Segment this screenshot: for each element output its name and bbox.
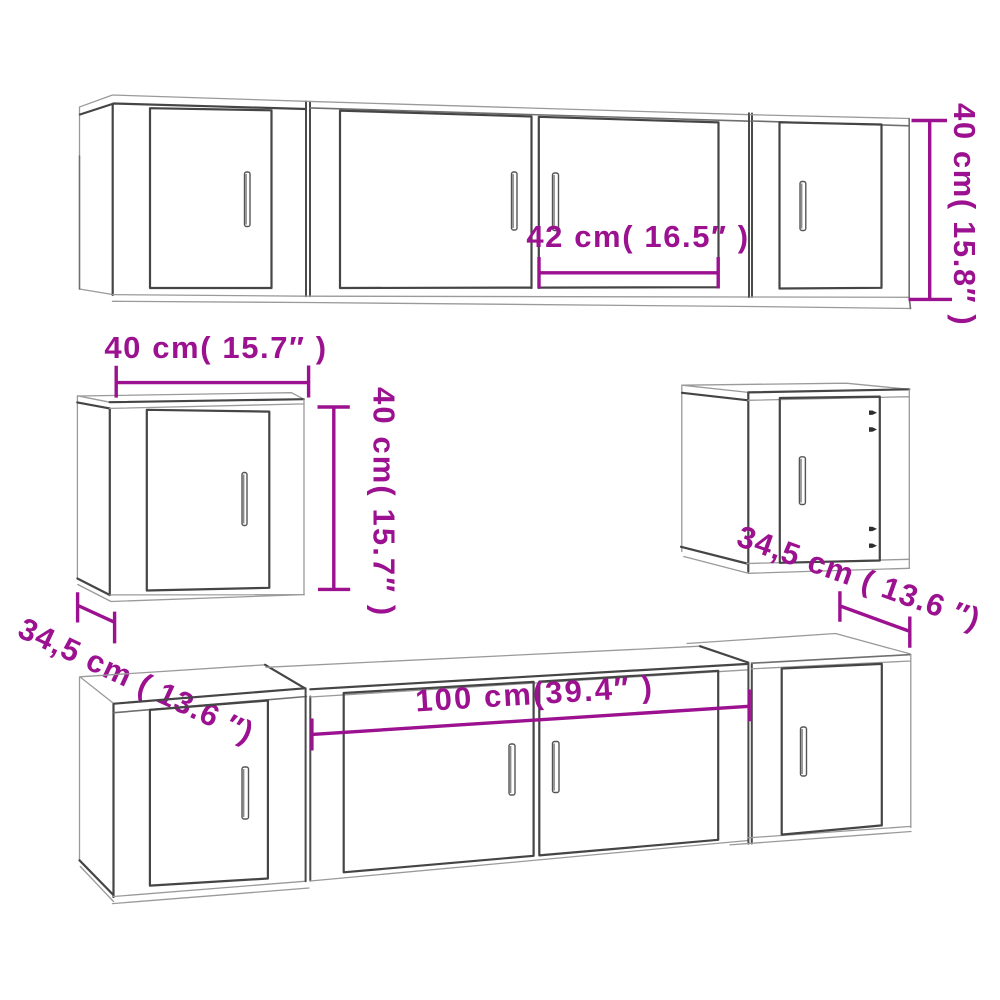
svg-text:34,5 cm ( 13.6 ″): 34,5 cm ( 13.6 ″) (13, 611, 260, 751)
svg-text:42 cm( 16.5″ ): 42 cm( 16.5″ ) (526, 219, 749, 254)
svg-text:34,5 cm ( 13.6 ″): 34,5 cm ( 13.6 ″) (733, 519, 986, 637)
svg-text:100 cm(39.4″ ): 100 cm(39.4″ ) (414, 669, 655, 719)
svg-text:40 cm( 15.8″ ): 40 cm( 15.8″ ) (947, 103, 982, 326)
svg-text:40 cm( 15.7″ ): 40 cm( 15.7″ ) (104, 330, 327, 365)
svg-text:40 cm( 15.7″ ): 40 cm( 15.7″ ) (367, 387, 402, 617)
